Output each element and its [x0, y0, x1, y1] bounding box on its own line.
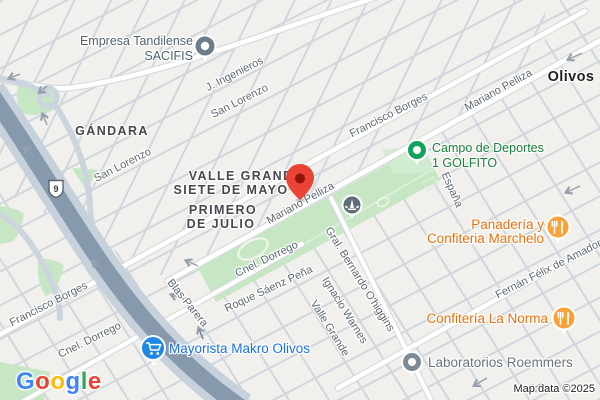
- neighborhood-label-gandara: GÁNDARA: [75, 123, 149, 138]
- logo-letter: G: [16, 368, 35, 395]
- poi-empresa-label-line1[interactable]: Empresa Tandilense: [80, 34, 193, 48]
- poi-campo-label-line2[interactable]: 1 GOLFITO: [432, 156, 497, 170]
- poi-panaderia-label-line2[interactable]: Confiteria Marchelo: [427, 231, 544, 246]
- logo-letter: o: [35, 368, 50, 395]
- logo-letter: e: [88, 368, 102, 395]
- route-shield-label: 9: [53, 184, 58, 194]
- route-9-shield: 9: [49, 181, 63, 198]
- google-logo[interactable]: Google: [16, 368, 102, 395]
- neighborhood-label-valle-grande: VALLE GRANDE: [189, 169, 304, 183]
- poi-roemmers-label[interactable]: Laboratorios Roemmers: [428, 355, 573, 370]
- poi-empresa-label-line2[interactable]: SACIFIS: [144, 49, 193, 63]
- map-attribution: Map data ©2025: [514, 383, 596, 395]
- neighborhood-label-primero-line2: DE JULIO: [187, 217, 256, 231]
- logo-letter: l: [81, 368, 88, 395]
- neighborhood-label-primero-line1: PRIMERO: [189, 203, 257, 217]
- logo-letter: o: [50, 368, 65, 395]
- poi-campo-label-line1[interactable]: Campo de Deportes: [432, 141, 544, 155]
- logo-letter: g: [66, 368, 81, 395]
- city-label-olivos: Olivos: [548, 69, 595, 85]
- poi-makro-label[interactable]: Mayorista Makro Olivos: [169, 341, 310, 356]
- map-canvas[interactable]: 9 J. Ingenieros San Lorenzo San Lorenzo …: [0, 0, 600, 400]
- map-svg: 9 J. Ingenieros San Lorenzo San Lorenzo …: [0, 0, 600, 400]
- neighborhood-label-siete-de-mayo: SIETE DE MAYO: [174, 183, 289, 197]
- poi-la-norma-label[interactable]: Confitería La Norma: [426, 311, 548, 326]
- poi-panaderia-label-line1[interactable]: Panadería y: [471, 217, 544, 232]
